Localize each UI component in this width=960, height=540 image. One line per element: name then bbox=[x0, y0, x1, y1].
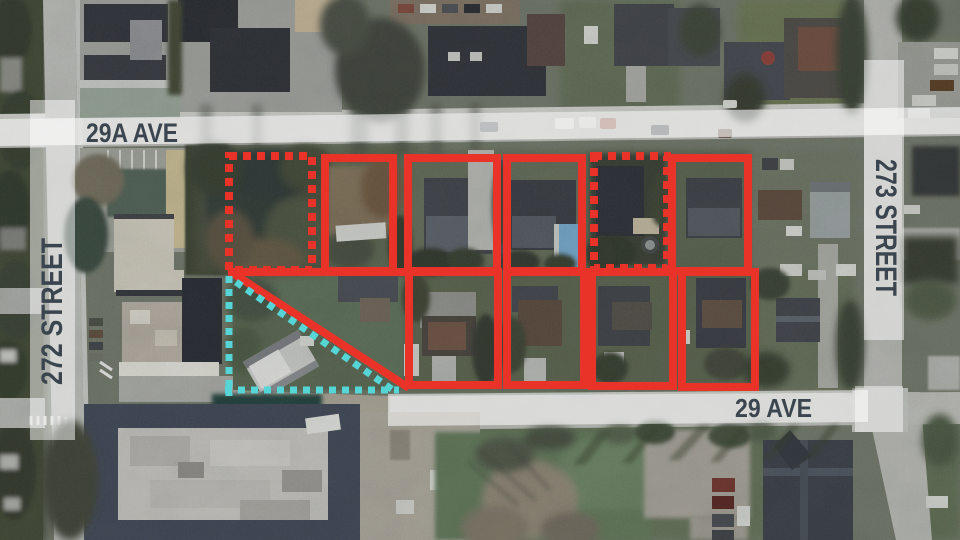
svg-text:29A AVE: 29A AVE bbox=[86, 118, 178, 148]
svg-text:273 STREET: 273 STREET bbox=[869, 159, 902, 296]
svg-text:272 STREET: 272 STREET bbox=[36, 238, 69, 385]
svg-text:29 AVE: 29 AVE bbox=[735, 393, 812, 423]
